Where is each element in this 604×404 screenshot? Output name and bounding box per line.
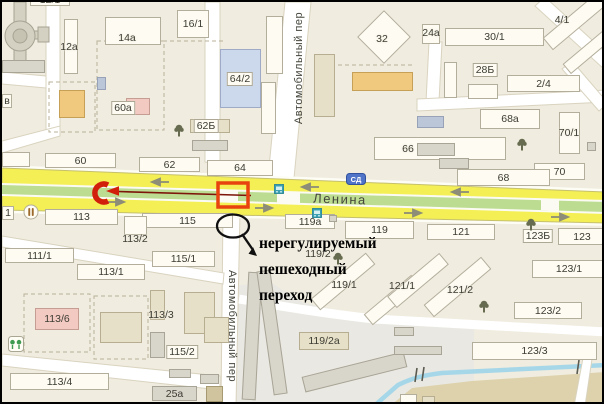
building-16/1: 16/1 [177,10,209,38]
building [200,374,219,384]
building [100,312,142,343]
building-60: 60 [45,153,116,168]
map-label-4/1: 4/1 [555,14,570,26]
building-119a: 119a [285,214,335,229]
map-label-64/2: 64/2 [227,72,253,86]
map-label-28Б: 28Б [473,63,498,77]
callout-text: нерегулируемый пешеходный переход [259,231,377,309]
map-screenshot: Ленина Автомобильный пер Автомобильный п… [0,0,604,404]
callout-line-1: нерегулируемый [259,231,377,257]
building [59,90,85,118]
building [352,72,413,91]
building [2,152,30,167]
building [206,386,223,402]
tree-icon [516,138,528,151]
building [444,62,457,98]
street-label-avtomobilny-top: Автомобильный пер [293,12,305,124]
svg-text:СД: СД [351,175,362,184]
building [261,82,276,134]
building [417,143,455,156]
callout-line-3: переход [259,283,377,309]
roundabout-structure [5,2,49,68]
building [400,394,417,403]
building-123/3: 123/3 [472,342,597,360]
building-113/6: 113/6 [35,308,79,330]
map-label-70/1: 70/1 [559,127,579,139]
callout-line-2: пешеходный [259,257,377,283]
building-123/1: 123/1 [532,260,604,278]
building-123/2: 123/2 [514,302,582,319]
rest-icon [23,204,39,220]
tree-icon [478,300,490,313]
bus-icon [274,184,284,194]
building [422,396,435,404]
map-label-66: 66 [402,143,414,155]
tree-icon [173,124,185,137]
tree-icon [525,218,537,231]
building-121: 121 [427,224,495,240]
map-label-62Б: 62Б [194,119,219,133]
building-64: 64 [207,160,273,176]
building-119/2a: 119/2a [299,332,349,350]
building-25a: 25a [152,386,197,401]
building [417,116,444,128]
map-label-123Б: 123Б [523,229,553,243]
map-label-32: 32 [376,33,388,45]
building-115: 115 [142,213,233,228]
building-30/1: 30/1 [445,28,544,46]
building-111/1: 111/1 [5,248,74,263]
building [2,60,45,73]
map-label-60a: 60a [111,101,135,115]
map-label-115/2: 115/2 [166,345,198,359]
building-113: 113 [45,209,118,225]
building [266,16,283,74]
building [394,346,442,355]
building-115/1: 115/1 [152,251,215,267]
bus-icon [312,208,322,218]
map-label-14a: 14a [118,32,136,44]
building [587,142,596,151]
street-label-avtomobilny-bottom: Автомобильный пер [226,270,238,382]
building [169,369,191,378]
building-123: 123 [558,228,604,245]
building-62: 62 [139,157,200,172]
building [394,327,414,336]
map-canvas[interactable]: Ленина Автомобильный пер Автомобильный п… [2,2,602,402]
building [192,140,228,151]
building [329,215,337,222]
map-label-113/2: 113/2 [122,233,148,245]
building-12/1: 12/1 [30,0,70,6]
map-label-113/3: 113/3 [148,309,174,321]
building [314,54,335,117]
building-2/4: 2/4 [507,75,580,92]
building-113/1: 113/1 [77,264,145,280]
map-label-12a: 12a [60,41,78,53]
badge-icon: СД [346,173,366,185]
building [150,332,165,358]
building-в: в [2,94,12,108]
street-label-lenina: Ленина [313,191,367,208]
building [439,158,469,169]
building-1: 1 [2,206,14,220]
kids-icon [8,336,24,352]
building-68: 68 [457,169,550,186]
building-68a: 68a [480,109,540,129]
building-113/4: 113/4 [10,373,109,390]
map-label-121/2: 121/2 [447,284,473,296]
map-label-24a: 24a [422,27,440,39]
map-label-121/1: 121/1 [389,280,415,292]
building [97,77,106,90]
building [468,84,498,99]
